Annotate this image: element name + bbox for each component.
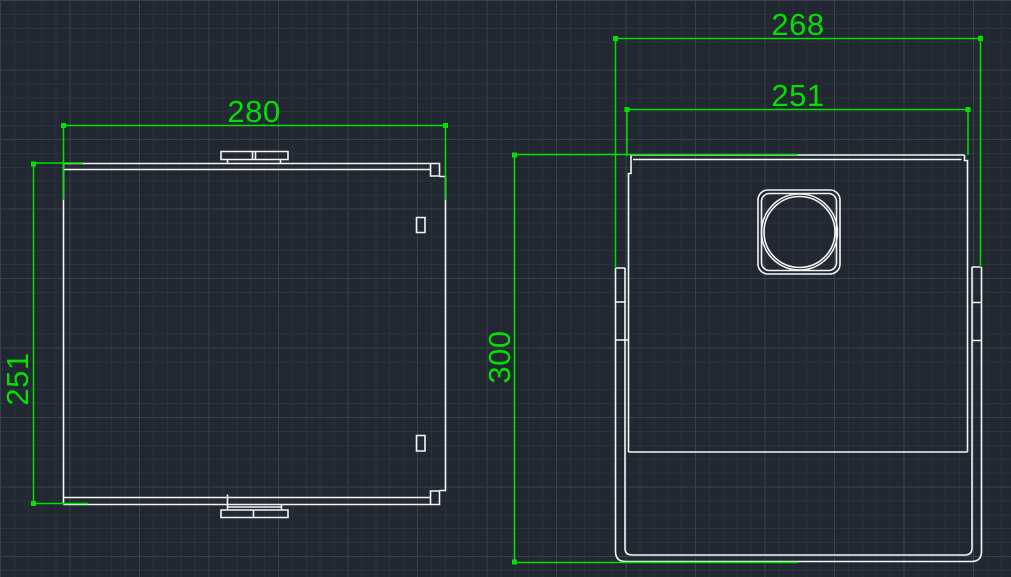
- dimension-side-height-label[interactable]: 300: [482, 330, 517, 383]
- tick-mark: [31, 501, 36, 506]
- knob-bezel-outer[interactable]: [758, 190, 840, 274]
- dimension-front-width-lines[interactable]: [64, 123, 446, 200]
- tick-mark: [443, 123, 448, 128]
- knob-circle-outer[interactable]: [762, 194, 838, 270]
- tick-mark: [512, 560, 517, 565]
- tick-mark: [978, 36, 983, 41]
- tick-mark: [31, 162, 36, 167]
- dimension-side-outer-width-label[interactable]: 268: [771, 7, 824, 42]
- front-top-mount-tab[interactable]: [221, 152, 288, 164]
- tick-mark: [613, 36, 618, 41]
- front-panel-outline[interactable]: [64, 164, 446, 505]
- dimension-front-width: 280: [61, 94, 448, 200]
- dimension-front-height: 251: [0, 162, 88, 507]
- dimension-side-height: 300: [482, 153, 798, 565]
- dimension-side-panel-width-label[interactable]: 251: [771, 78, 824, 113]
- dimension-side-panel-width-lines[interactable]: [627, 107, 968, 156]
- dimension-side-outer-width: 268: [613, 7, 983, 268]
- dimension-side-outer-width-lines[interactable]: [616, 36, 981, 268]
- tick-mark: [61, 123, 66, 128]
- front-view: [64, 152, 446, 518]
- knob-circle-inner[interactable]: [764, 197, 835, 268]
- mounting-bracket[interactable]: [616, 267, 982, 562]
- dimension-front-height-label[interactable]: 251: [0, 352, 35, 405]
- dimension-side-height-lines[interactable]: [512, 155, 798, 563]
- side-panel-outline[interactable]: [629, 155, 968, 452]
- drawing-layer: 280 251 268 251: [0, 0, 1011, 577]
- dimension-front-width-label[interactable]: 280: [227, 94, 280, 129]
- front-side-clips[interactable]: [417, 218, 426, 452]
- side-view: [616, 155, 982, 562]
- dimension-side-panel-width: 251: [625, 78, 971, 156]
- tick-mark: [625, 107, 630, 112]
- tick-mark: [966, 107, 971, 112]
- cad-drawing-canvas[interactable]: 280 251 268 251: [0, 0, 1011, 577]
- tick-mark: [512, 153, 517, 158]
- dimension-front-height-lines[interactable]: [31, 163, 88, 504]
